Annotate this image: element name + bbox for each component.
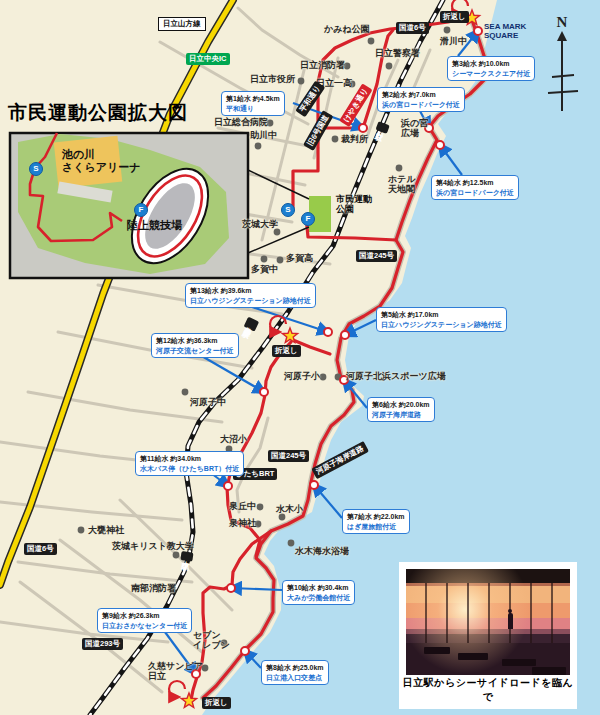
place-label: 河原子小 [284,371,320,381]
road-badge: けやき通り [339,83,372,127]
place-label: 滑川中 [440,36,467,46]
road-badge: 平和通り [295,81,325,117]
place-label: 南部消防署 [131,583,176,593]
inset-arena-label: 池の川 さくらアリーナ [62,148,141,173]
place-label: SEA MARK SQUARE [484,22,526,40]
bench-silhouette [502,659,536,666]
water-station-label: 第5給水 約17.0km日立ハウジングステーション跡地付近 [376,307,507,332]
station-badge: 常陸多賀駅 [244,317,259,332]
road-badge: 日立中央IC [186,53,230,65]
person-silhouette [508,613,513,629]
window-mullions [406,583,570,643]
road-badge: 旧6号国道 [303,110,333,151]
place-label: 河原子中 [190,397,226,407]
place-label: 日立消防署 [300,60,345,70]
water-station-label: 第2給水 約7.0km浜の宮ロードパーク付近 [377,87,465,112]
turnaround-badge: 折返し [272,345,301,357]
water-station-label: 第8給水 約25.0km日立港入口交差点 [261,660,329,685]
place-label: 市民運動 公園 [336,194,372,214]
place-label: 裁判所 [341,134,368,144]
water-station-label: 第13給水 約39.6km日立ハウジングステーション跡地付近 [185,283,316,308]
inset-start-marker: S [29,162,43,176]
road-badge: 国道293号 [82,638,123,650]
place-label: 助川中 [250,130,277,140]
water-station-label: 第9給水 約26.3km日立おさかなセンター付近 [97,608,192,633]
place-label: 水木海水浴場 [295,546,349,556]
inset-stadium-label: 陸上競技場 [127,219,182,232]
place-label: 日立総合病院 [214,117,268,127]
water-station-label: 第11給水 約34.0km水木バス停（ひたちBRT）付近 [135,451,244,476]
place-label: 茨城キリスト教大学 [112,541,194,551]
place-label: 久慈サンピア 日立 [148,661,203,681]
turnaround-badge: 折返し [440,11,469,23]
photo-caption: 日立駅からシーサイドロードを臨んで [399,676,577,704]
photo-card: 日立駅からシーサイドロードを臨んで [399,562,577,709]
page-title: 市民運動公園拡大図 [8,100,188,126]
place-label: 茨城大学 [242,219,278,229]
station-badge: 大甕駅 [180,551,193,562]
compass: N [540,14,584,119]
start-marker: S [281,203,295,217]
road-badge: 国道245号 [268,450,309,462]
compass-north-label: N [540,14,584,31]
finish-marker: F [301,212,315,226]
water-station-label: 第1給水 約4.5km平和通り [221,91,285,116]
place-label: 多賀中 [251,264,278,274]
compass-needle-icon [540,31,584,115]
place-label: かみね公園 [324,24,370,34]
place-label: 多賀高 [286,253,313,263]
road-badge: 河原子海岸道路 [311,441,368,479]
road-badge: 国道245号 [356,250,397,262]
place-label: 浜の宮 広場 [401,118,428,138]
bench-silhouette [424,647,450,654]
course-map: 市民運動公園拡大図 N 池の川 さくらアリーナ 陸上競技場 [0,0,600,715]
water-station-label: 第3給水 約10.0kmシーマークスクエア付近 [447,56,535,81]
water-station-label: 第6給水 約20.0km河原子海岸道路 [367,397,435,422]
turnaround-badge: 折返し [202,697,231,709]
place-label: 日立市役所 [250,74,295,84]
station-badge: 日立駅 [375,121,389,133]
bench-silhouette [532,667,566,675]
label-layer: 市民運動公園拡大図 N 池の川 さくらアリーナ 陸上競技場 [0,0,600,715]
seaside-photo [406,569,570,675]
place-label: セブン イレブン [193,630,230,650]
road-badge: 日立山方線 [158,17,206,31]
place-label: 泉丘中 [229,501,256,511]
place-label: 泉神社 [229,518,256,528]
water-station-label: 第12給水 約36.3km河原子交流センター付近 [151,333,239,358]
person-silhouette [508,609,512,613]
place-label: 大沼小 [220,434,247,444]
place-label: ホテル 天地閣 [388,174,416,194]
road-badge: 国道6号 [24,543,57,555]
place-label: 大甕神社 [88,525,124,535]
water-station-label: 第10給水 約30.4km大みか労働会館付近 [282,580,355,605]
water-station-label: 第4給水 約12.5km浜の宮ロードパーク付近 [431,175,519,200]
place-label: 河原子北浜スポーツ広場 [346,371,446,381]
place-label: 水木小 [276,504,303,514]
water-station-label: 第7給水 約22.0kmはぎ屋旅館付近 [342,509,410,534]
bench-silhouette [458,653,488,660]
inset-finish-marker: F [134,203,148,217]
place-label: 日立警察署 [375,48,420,58]
road-badge: 国道6号 [396,22,429,34]
